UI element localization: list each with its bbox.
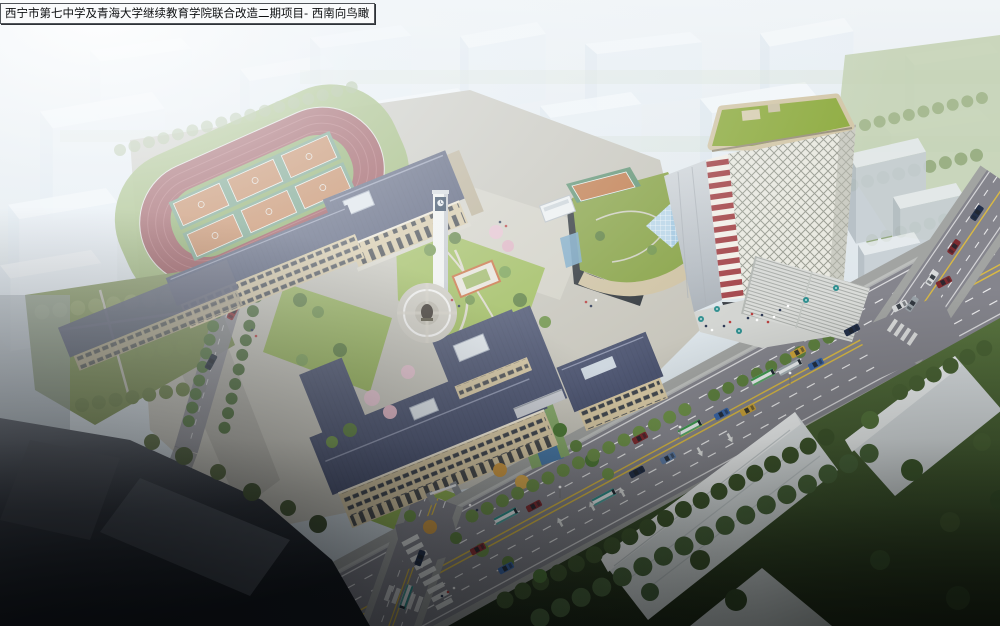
title-label: 西宁市第七中学及青海大学继续教育学院联合改造二期项目- 西南向鸟瞰 (0, 3, 375, 24)
vignette-bottom-right (0, 0, 1000, 626)
architectural-rendering: 西宁市第七中学及青海大学继续教育学院联合改造二期项目- 西南向鸟瞰 (0, 0, 1000, 626)
aerial-scene (0, 0, 1000, 626)
